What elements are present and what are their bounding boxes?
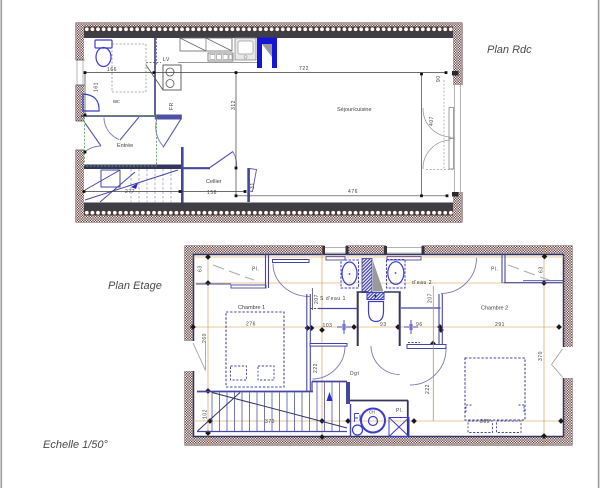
svg-text:Chambre 1: Chambre 1	[238, 305, 265, 311]
svg-text:312: 312	[231, 100, 237, 110]
svg-text:166: 166	[107, 67, 117, 73]
svg-text:d'eau 2: d'eau 2	[412, 280, 432, 286]
svg-text:291: 291	[495, 322, 505, 328]
svg-text:370: 370	[265, 419, 275, 425]
svg-text:Entrée: Entrée	[117, 143, 133, 149]
svg-text:Pl.: Pl.	[252, 267, 260, 273]
svg-text:93: 93	[380, 322, 387, 328]
svg-text:Cellier: Cellier	[206, 179, 222, 185]
svg-text:Plan Rdc: Plan Rdc	[487, 44, 532, 56]
svg-text:CH: CH	[369, 410, 375, 415]
svg-text:63: 63	[539, 266, 545, 273]
svg-text:277: 277	[125, 189, 135, 195]
svg-text:365: 365	[480, 419, 490, 425]
svg-text:276: 276	[246, 322, 256, 328]
svg-text:103: 103	[323, 323, 333, 329]
svg-text:90: 90	[436, 75, 442, 82]
svg-text:FR: FR	[169, 102, 175, 110]
svg-text:S d'eau 1: S d'eau 1	[320, 296, 346, 302]
svg-text:158: 158	[207, 190, 217, 196]
svg-text:Pl.: Pl.	[396, 408, 404, 414]
svg-text:31: 31	[250, 182, 256, 189]
svg-text:102: 102	[203, 409, 209, 419]
svg-text:Chambre 2: Chambre 2	[481, 306, 508, 312]
svg-text:207: 207	[314, 294, 320, 304]
svg-text:Echelle 1/50°: Echelle 1/50°	[43, 439, 109, 451]
svg-text:63: 63	[198, 265, 204, 272]
svg-text:Séjour/cuisine: Séjour/cuisine	[337, 107, 372, 113]
svg-text:722: 722	[299, 66, 309, 72]
svg-text:222: 222	[313, 363, 319, 373]
svg-text:476: 476	[348, 189, 358, 195]
svg-text:LV: LV	[163, 57, 170, 63]
svg-text:370: 370	[538, 351, 544, 361]
svg-text:260: 260	[202, 333, 208, 343]
svg-text:Pl.: Pl.	[491, 267, 499, 273]
svg-text:wc: wc	[112, 99, 120, 105]
svg-text:96: 96	[416, 322, 423, 328]
svg-text:Dgt: Dgt	[350, 371, 359, 377]
svg-text:207: 207	[428, 293, 434, 303]
svg-text:222: 222	[425, 384, 431, 394]
svg-text:Plan Etage: Plan Etage	[108, 280, 162, 292]
svg-text:161: 161	[94, 82, 100, 92]
svg-text:407: 407	[429, 116, 435, 126]
